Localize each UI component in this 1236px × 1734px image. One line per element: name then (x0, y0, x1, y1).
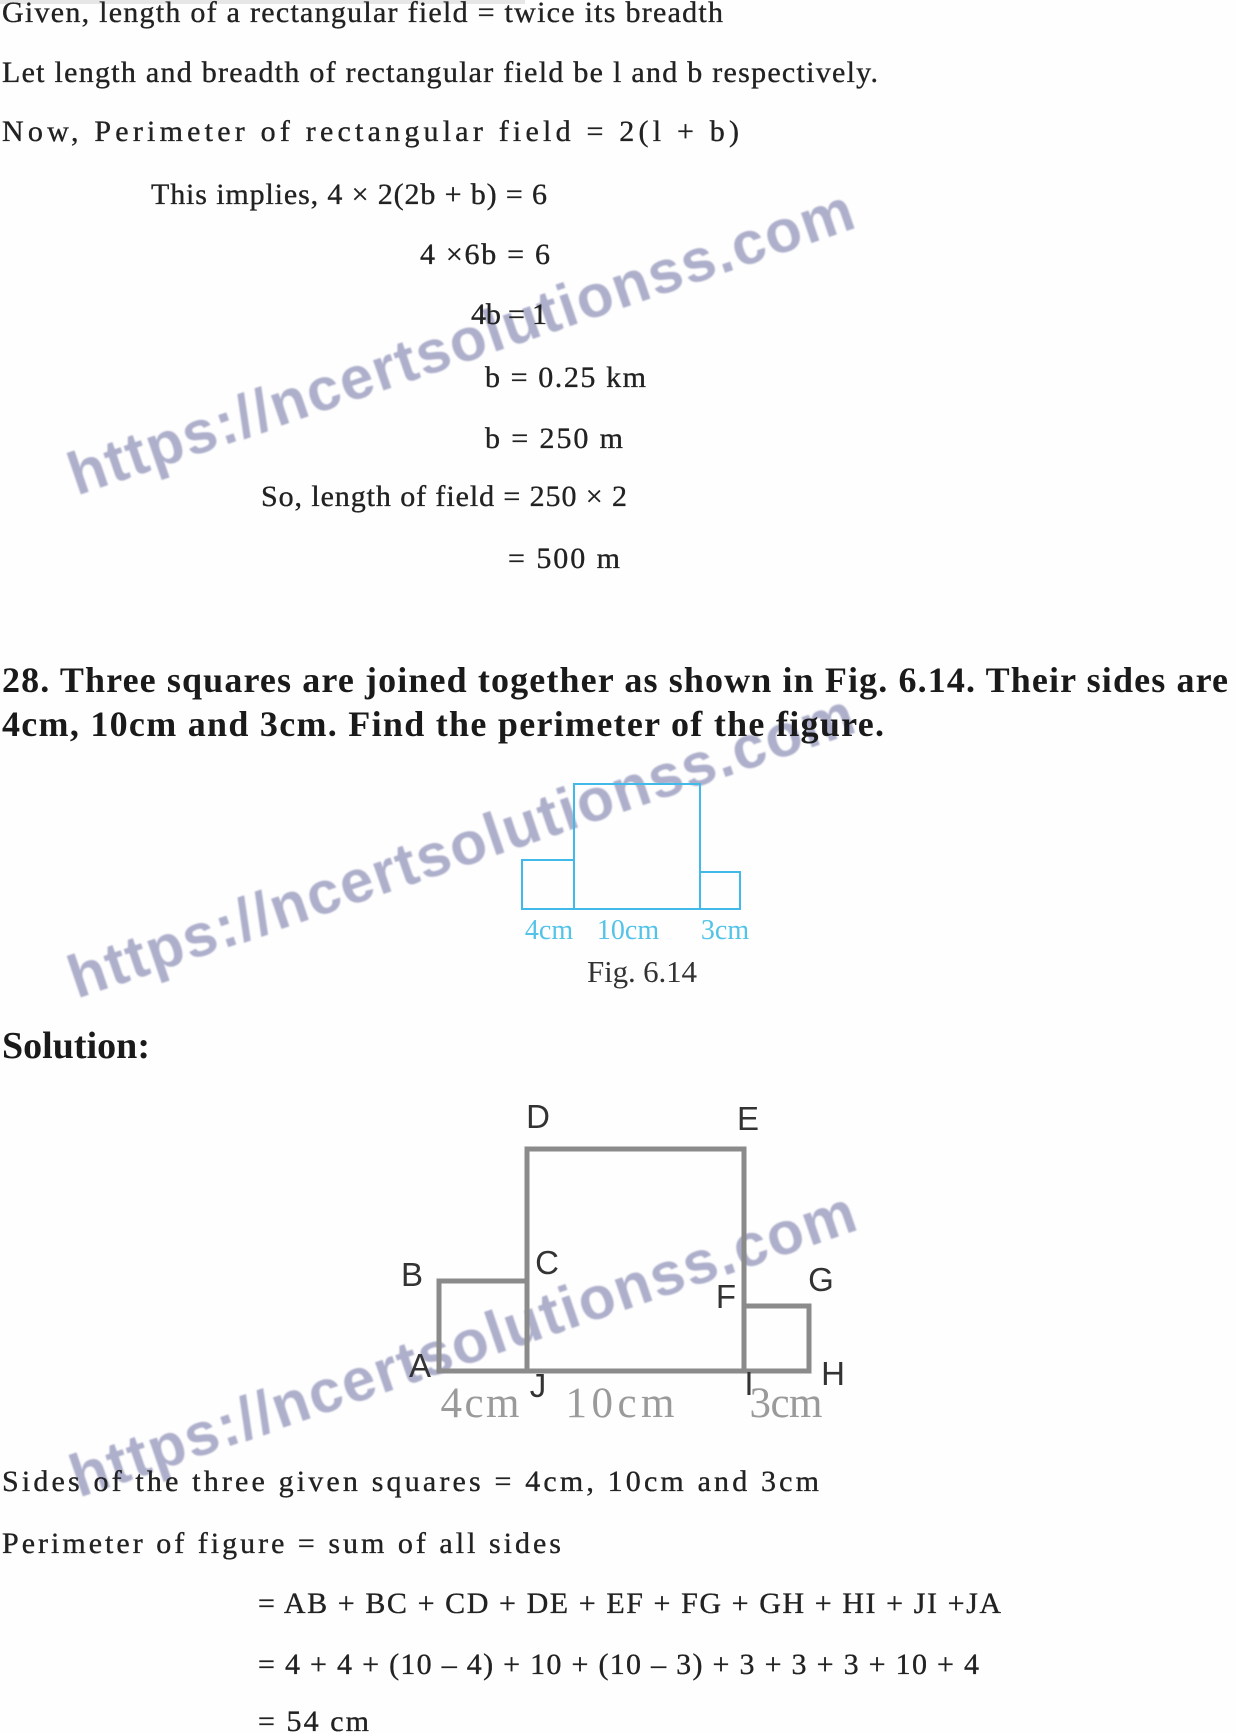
svg-text:= 500 m: = 500 m (508, 542, 620, 575)
svg-text:4cm, 10cm and 3cm. Find the pe: 4cm, 10cm and 3cm. Find the perimeter of… (2, 704, 884, 744)
svg-text:B: B (401, 1256, 423, 1293)
svg-text:J: J (530, 1367, 547, 1404)
svg-text:4cm: 4cm (441, 1380, 520, 1427)
svg-text:= 4 + 4 + (10 – 4) + 10 + (10: = 4 + 4 + (10 – 4) + 10 + (10 – 3) + 3 +… (258, 1648, 979, 1681)
svg-text:4cm: 4cm (525, 915, 573, 946)
svg-text:Let length and breadth of rect: Let length and breadth of rectangular fi… (2, 56, 878, 89)
svg-text:28. Three squares are joined t: 28. Three squares are joined together as… (2, 660, 1228, 700)
svg-text:b = 250 m: b = 250 m (485, 422, 623, 455)
svg-text:E: E (737, 1100, 759, 1137)
svg-text:4 ×6b = 6: 4 ×6b = 6 (420, 238, 550, 271)
svg-text:H: H (821, 1355, 845, 1392)
svg-text:Solution:: Solution: (2, 1025, 150, 1067)
svg-text:= 54 cm: = 54 cm (258, 1705, 369, 1734)
svg-text:10cm: 10cm (566, 1380, 675, 1427)
svg-text:A: A (409, 1347, 431, 1384)
svg-text:This implies, 4 × 2(2b + b) =: This implies, 4 × 2(2b + b) = 6 (151, 178, 547, 211)
svg-text:So, length of field = 250 × 2: So, length of field = 250 × 2 (261, 480, 627, 513)
svg-text:10cm: 10cm (597, 915, 659, 946)
svg-text:Fig. 6.14: Fig. 6.14 (587, 954, 698, 989)
svg-text:3cm: 3cm (750, 1380, 823, 1427)
svg-text:4b = 1: 4b = 1 (471, 298, 547, 331)
svg-text:3cm: 3cm (701, 915, 749, 946)
svg-text:D: D (526, 1098, 550, 1135)
svg-text:F: F (716, 1278, 736, 1315)
svg-text:C: C (535, 1244, 559, 1281)
svg-text:= AB + BC + CD + DE + EF + FG: = AB + BC + CD + DE + EF + FG + GH + HI … (258, 1587, 1001, 1620)
svg-text:G: G (808, 1261, 834, 1298)
svg-text:Given, length of a rectangular: Given, length of a rectangular field = t… (2, 0, 723, 29)
